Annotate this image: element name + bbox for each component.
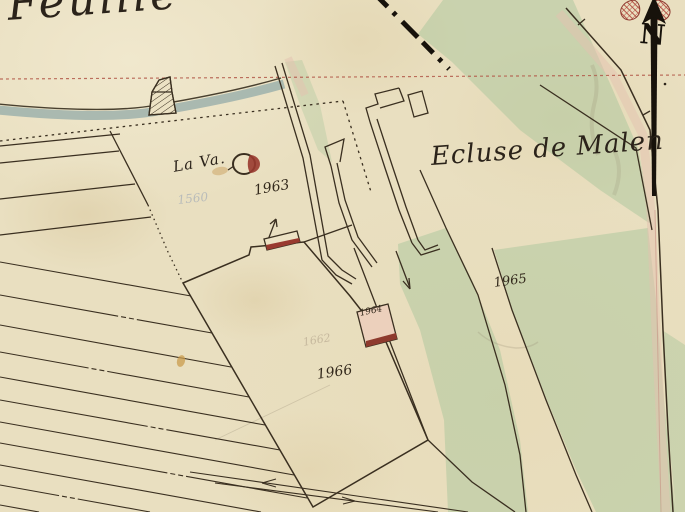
steep-parcel-line [110, 131, 148, 205]
survey-dot [664, 83, 667, 86]
cadastral-map-sheet: Feuille Ecluse de Malen La Va. 1963 1964… [0, 0, 685, 512]
dotted-boundary-descending [343, 101, 371, 192]
parcel-1966-outline [183, 242, 428, 507]
amber-stain-drop [176, 354, 187, 368]
field-strip-hatching [0, 262, 468, 512]
hatched-bridge-structure [149, 77, 176, 115]
stream [0, 78, 284, 115]
arrowed-line-left [190, 472, 468, 512]
north-letter: N [639, 20, 667, 50]
arrowed-line-right [215, 483, 438, 512]
left-low-line [0, 134, 120, 146]
pencil-number-1560: 1560 [177, 191, 209, 206]
well-red-crescent [248, 155, 260, 173]
parcel-corner-road-line [304, 225, 352, 242]
map-drawing [0, 0, 685, 512]
lock-gate-recess [408, 91, 428, 117]
compass-ornament-left [621, 0, 640, 20]
steep-parcel-line-dotted [148, 205, 182, 281]
